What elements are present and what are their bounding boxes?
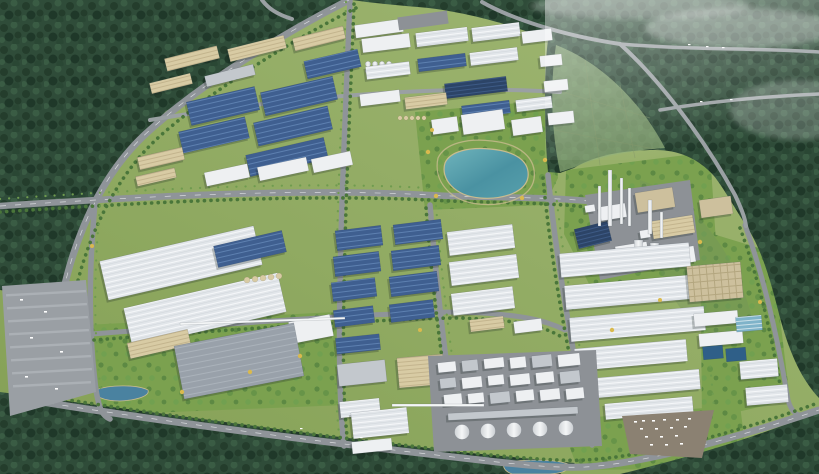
treatment-pool — [735, 315, 762, 332]
car — [675, 435, 678, 437]
building — [440, 377, 457, 389]
beige-grid-building — [687, 262, 744, 303]
car — [30, 337, 33, 339]
large-silo — [455, 425, 470, 440]
building — [515, 389, 534, 402]
chimney-stack — [608, 170, 612, 226]
car — [645, 436, 648, 438]
industrial-park-render: Aerial 3D master-plan rendering of a lar… — [0, 0, 819, 474]
car — [660, 436, 663, 438]
building — [509, 356, 526, 369]
building — [539, 388, 560, 401]
yellow-tree — [248, 370, 252, 374]
building — [739, 358, 778, 379]
lake-water — [444, 149, 528, 199]
treatment-pool — [702, 345, 723, 360]
tank — [404, 116, 408, 120]
yellow-tree — [426, 150, 430, 154]
building — [489, 391, 510, 404]
car — [20, 299, 23, 301]
chimney-stack — [598, 186, 601, 226]
tank — [416, 116, 420, 120]
car — [640, 428, 643, 430]
building — [535, 371, 554, 384]
aerial-scene — [0, 0, 819, 474]
large-silo — [481, 424, 496, 439]
car — [665, 444, 668, 446]
silo — [276, 273, 282, 279]
yellow-tree — [434, 194, 438, 198]
yellow-tree — [418, 328, 422, 332]
car — [652, 420, 655, 422]
building — [531, 354, 552, 368]
mist-overlay — [530, 0, 819, 160]
building — [559, 370, 580, 384]
parking-lot — [622, 410, 714, 458]
car — [650, 444, 653, 446]
building — [438, 361, 457, 373]
chimney-stack — [648, 200, 652, 234]
yellow-tree — [698, 240, 702, 244]
car — [25, 376, 28, 378]
car — [670, 427, 673, 429]
yellow-tree — [520, 196, 524, 200]
large-silo — [507, 423, 522, 438]
tank — [398, 116, 402, 120]
large-silo — [559, 421, 574, 436]
tank — [365, 61, 371, 67]
car — [688, 418, 691, 420]
silo — [268, 274, 274, 280]
large-silo — [533, 422, 548, 437]
building — [468, 392, 485, 404]
building — [585, 204, 596, 212]
car — [642, 420, 645, 422]
car — [680, 443, 683, 445]
yellow-tree — [90, 244, 94, 248]
building — [337, 360, 387, 387]
building — [557, 353, 580, 367]
car — [44, 311, 47, 313]
car — [684, 426, 687, 428]
chimney-stack — [628, 188, 631, 226]
yellow-tree — [180, 390, 184, 394]
tank — [422, 116, 426, 120]
yellow-tree — [430, 128, 434, 132]
building — [745, 384, 788, 406]
yellow-tree — [658, 298, 662, 302]
car — [55, 388, 58, 390]
yellow-tree — [758, 300, 762, 304]
silo — [260, 275, 266, 281]
car — [634, 421, 637, 423]
car — [663, 419, 666, 421]
pipe-bridge — [392, 404, 484, 407]
building — [461, 376, 482, 389]
building — [351, 407, 409, 439]
silo — [244, 277, 250, 283]
building — [484, 357, 505, 369]
building — [509, 373, 530, 386]
car — [655, 428, 658, 430]
car — [60, 351, 63, 353]
building — [461, 359, 478, 372]
district-west-parking-lot — [2, 280, 96, 416]
building — [488, 374, 505, 386]
silo — [252, 276, 258, 282]
car — [360, 437, 363, 438]
chimney-stack — [660, 212, 663, 238]
car — [300, 428, 303, 429]
car — [676, 419, 679, 421]
building — [565, 387, 584, 400]
treatment-pool — [725, 347, 746, 362]
tank — [410, 116, 414, 120]
yellow-tree — [610, 328, 614, 332]
yellow-tree — [298, 354, 302, 358]
chimney-stack — [620, 178, 623, 224]
